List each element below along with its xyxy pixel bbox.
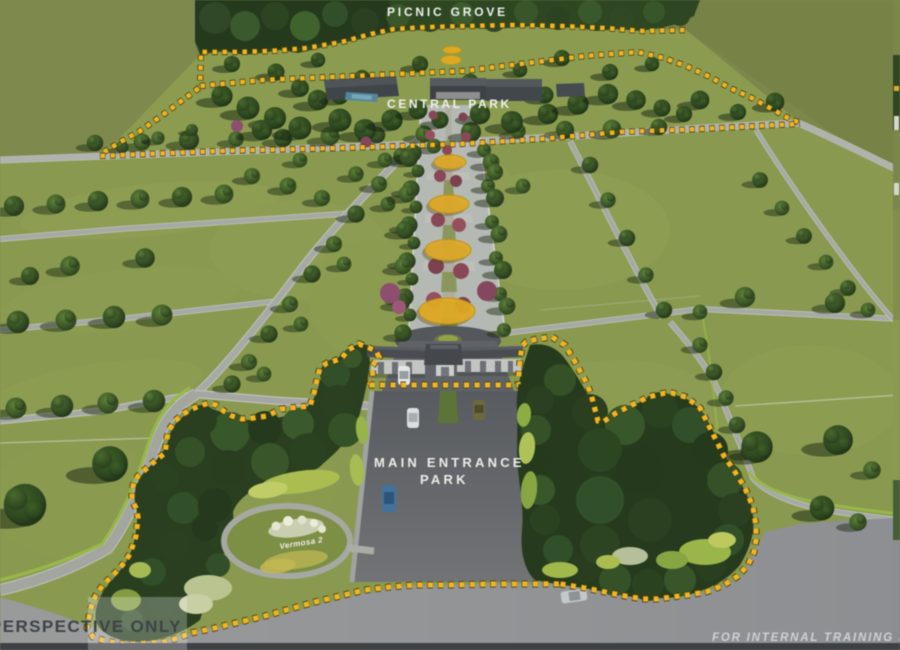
svg-text:FOR INTERNAL TRAINING P: FOR INTERNAL TRAINING P xyxy=(712,632,900,644)
svg-text:MAIN ENTRANCE: MAIN ENTRANCE xyxy=(374,455,525,470)
svg-text:CENTRAL PARK: CENTRAL PARK xyxy=(387,97,512,111)
svg-text:PICNIC GROVE: PICNIC GROVE xyxy=(387,5,508,19)
svg-text:PARK: PARK xyxy=(420,472,469,487)
svg-text:PERSPECTIVE ONLY: PERSPECTIVE ONLY xyxy=(0,617,182,636)
